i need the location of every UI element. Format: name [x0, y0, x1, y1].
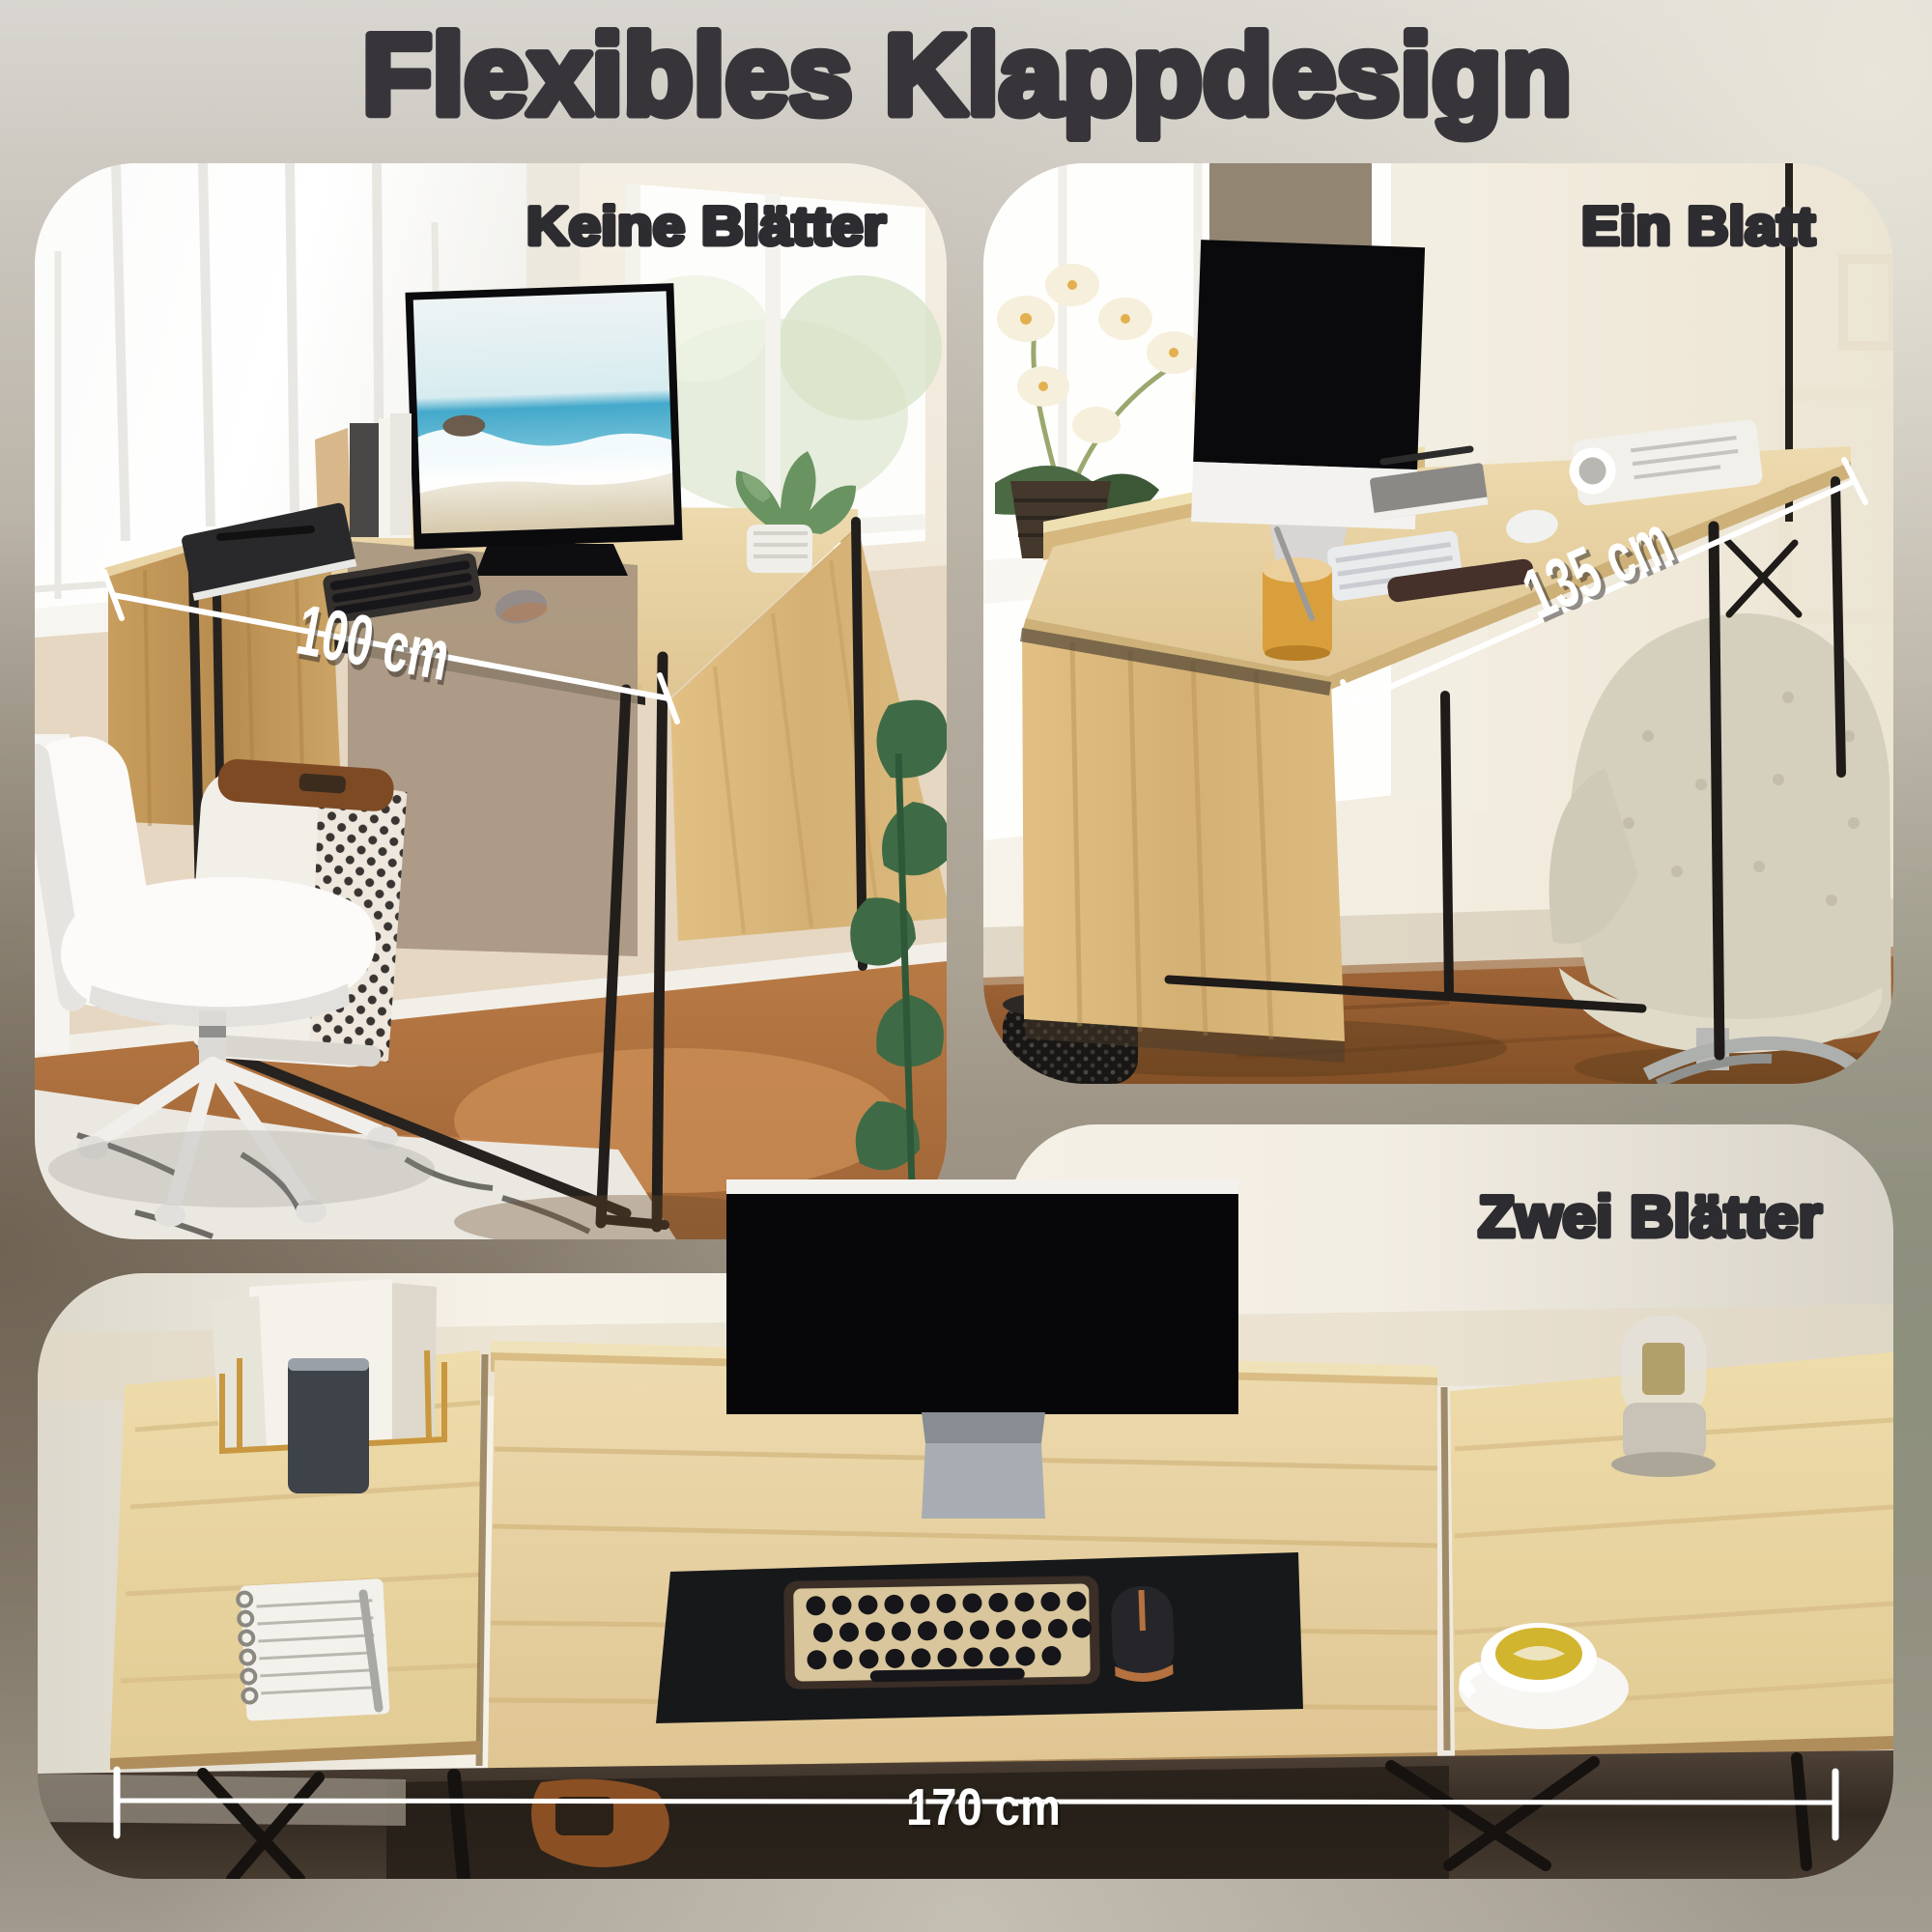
- svg-text:Flexibles Klappdesign: Flexibles Klappdesign: [362, 12, 1572, 139]
- svg-text:170 cm: 170 cm: [906, 1778, 1061, 1836]
- svg-text:Ein Blatt: Ein Blatt: [1581, 195, 1815, 256]
- svg-text:Zwei Blätter: Zwei Blätter: [1478, 1184, 1822, 1249]
- svg-text:Keine Blätter: Keine Blätter: [526, 195, 886, 256]
